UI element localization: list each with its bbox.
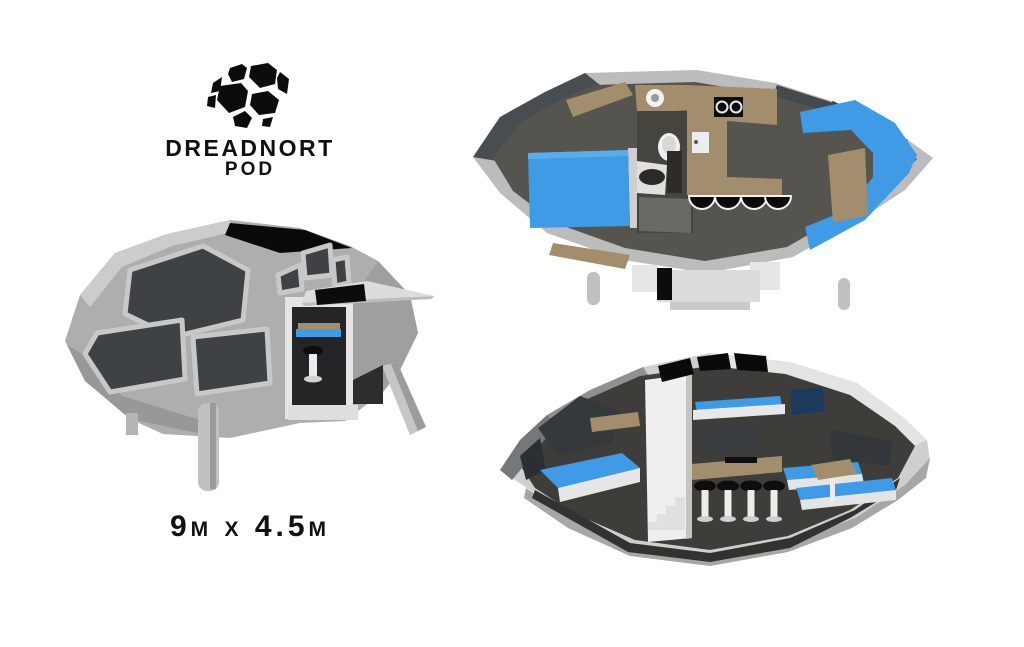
- lounge-table: [828, 148, 868, 223]
- galley-window: [700, 422, 762, 453]
- pod-exterior-render: [60, 215, 440, 495]
- brand-name: DREADNORT: [140, 136, 360, 160]
- plan-bed: [528, 148, 641, 228]
- sink-basin: [639, 169, 665, 185]
- dreadnort-logo-icon: [204, 62, 294, 132]
- brand-subname: POD: [140, 160, 360, 180]
- product-sheet: DREADNORT POD 9m x 4.5m: [0, 0, 1024, 647]
- bathroom: [635, 85, 693, 233]
- porch-base: [288, 405, 358, 420]
- dimensions-label: 9m x 4.5m: [130, 510, 370, 544]
- navy-window: [790, 387, 825, 415]
- cutaway-cooktop: [725, 457, 757, 463]
- interior-shelf: [298, 323, 340, 329]
- pod-floorplan-render: [465, 55, 945, 315]
- pod-cutaway-render: [500, 338, 935, 608]
- center-wall: [645, 374, 692, 542]
- interior-table: [296, 329, 341, 337]
- door-opening: [657, 268, 672, 300]
